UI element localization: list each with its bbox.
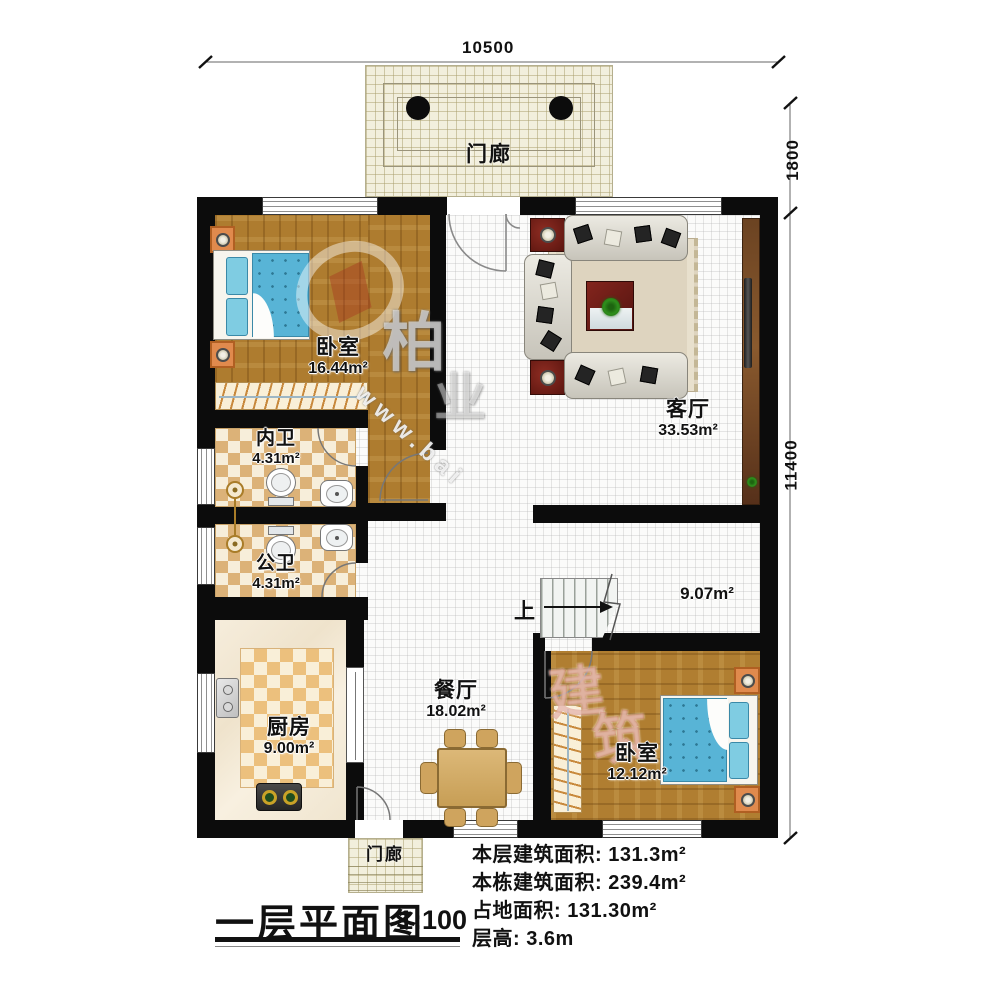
title-underline-thin (215, 946, 460, 947)
coffee-table (586, 281, 634, 331)
room-label-bedroom2: 卧室 12.12m² (607, 742, 667, 785)
sink-icon (320, 524, 353, 551)
nightstand (210, 226, 235, 253)
wall-corridor-right (430, 215, 446, 450)
stairs (540, 578, 618, 638)
room-label-hall: 9.07m² (680, 584, 734, 604)
wall-bath-bottom (197, 597, 368, 620)
dim-top-value: 10500 (462, 38, 514, 58)
wall-top-3 (520, 197, 575, 215)
stairs-up-label: 上 (514, 595, 535, 625)
room-label-bath-public: 公卫 4.31m² (252, 553, 300, 592)
porch-column-right (549, 96, 573, 120)
wall-bedroom2-left (533, 651, 551, 820)
bedroom1-corridor-floor (368, 215, 430, 503)
sofa-left (524, 254, 572, 360)
dim-right-lower-value: 11400 (782, 439, 802, 490)
room-label-living: 客厅 33.53m² (658, 398, 718, 441)
wall-kitchen-right-upper (346, 620, 364, 667)
wall-kitchen-right-lower (346, 763, 364, 820)
bed2-mattress (663, 698, 727, 782)
sofa-pillow (540, 282, 559, 301)
bottom-porch-steps (348, 866, 423, 893)
wall-corridor-bottom (368, 503, 446, 521)
sink-basin (223, 702, 233, 712)
room-area: 4.31m² (252, 575, 300, 592)
lamp-icon (741, 674, 755, 688)
window-bedroom2-bottom (602, 820, 702, 838)
bed-pillow (729, 742, 749, 779)
door-panel-line (355, 672, 356, 760)
wall-bath-divider (197, 507, 368, 524)
sofa-pillow (604, 229, 623, 248)
sink-icon (320, 480, 353, 507)
stove-icon (256, 783, 302, 811)
wall-living-hall (533, 505, 760, 523)
nightstand (210, 341, 235, 368)
kitchen-sliding-door (346, 667, 364, 763)
room-name: 餐厅 (426, 679, 486, 703)
toilet-seat (271, 473, 291, 492)
side-table-top (530, 218, 565, 252)
dim-right-upper-value: 1800 (783, 139, 803, 181)
toilet-tank (268, 526, 294, 535)
bed-pillow (729, 702, 749, 739)
sofa-top (564, 215, 688, 261)
sofa-pillow (573, 224, 593, 244)
dining-chair (444, 729, 466, 748)
dining-chair (476, 729, 498, 748)
cabinet-plant-icon (747, 477, 757, 487)
wall-bottom-1 (197, 820, 355, 838)
top-porch-label: 门廊 (466, 138, 512, 168)
bedroom1-wardrobe (215, 382, 368, 410)
room-name: 客厅 (658, 398, 718, 422)
title-underline-thick (215, 937, 460, 942)
sofa-pillow (661, 228, 682, 249)
bed1-frame (213, 250, 310, 340)
room-name: 卧室 (308, 336, 368, 360)
dining-table (437, 748, 507, 808)
room-label-bath-inner: 内卫 4.31m² (252, 428, 300, 467)
room-area: 9.07m² (680, 584, 734, 604)
bedroom2-wardrobe (553, 705, 582, 813)
sofa-pillow (540, 330, 562, 352)
nightstand (734, 786, 760, 813)
sofa-pillow (640, 366, 659, 385)
toilet-tank (268, 497, 294, 506)
bed-sheet-fold (253, 282, 275, 338)
window-bath-inner-left (197, 448, 215, 505)
wall-hall-bedroom2-right (592, 633, 760, 651)
wall-bedroom1-bottom (197, 410, 368, 428)
stat-floor-height: 层高: 3.6m (472, 922, 574, 951)
floorplan-canvas: 门廊 门廊 (0, 0, 1000, 990)
dining-chair (476, 808, 498, 827)
wall-right (760, 197, 778, 838)
sofa-pillow (634, 225, 652, 243)
sofa-pillow (608, 368, 627, 387)
room-name: 卧室 (607, 742, 667, 766)
bed-sheet-fold (706, 699, 728, 759)
wall-bottom-3 (518, 820, 602, 838)
room-name: 公卫 (252, 553, 300, 575)
sink-basin (223, 685, 233, 695)
lamp-icon (540, 370, 556, 386)
sofa-pillow (536, 306, 554, 324)
wall-bath-inner-right (356, 466, 368, 507)
toilet-icon (266, 468, 296, 497)
wall-bath-public-right (356, 524, 368, 563)
window-bath-public-left (197, 527, 215, 585)
bottom-porch-label: 门廊 (366, 840, 404, 865)
lamp-icon (741, 793, 755, 807)
lamp-icon (540, 227, 556, 243)
bed2-frame (660, 695, 758, 785)
bed-pillow (226, 298, 248, 336)
room-label-kitchen: 厨房 9.00m² (264, 716, 315, 759)
sofa-pillow (535, 259, 554, 278)
coffee-table-plant-icon (602, 298, 620, 316)
room-area: 16.44m² (308, 360, 368, 378)
window-kitchen-left (197, 673, 215, 753)
drawing-scale: 1:100 (398, 905, 467, 936)
window-bedroom1-top (262, 197, 378, 215)
nightstand (734, 667, 760, 694)
dining-chair (420, 762, 438, 794)
room-label-bedroom1: 卧室 16.44m² (308, 336, 368, 379)
room-label-dining: 餐厅 18.02m² (426, 679, 486, 722)
stat-footprint-area: 占地面积: 131.30m² (472, 894, 657, 923)
window-living-top (575, 197, 722, 215)
sofa-pillow (574, 364, 595, 385)
room-name: 厨房 (264, 716, 315, 740)
room-area: 33.53m² (658, 422, 718, 440)
bed-pillow (226, 257, 248, 295)
stat-floor-area: 本层建筑面积: 131.3m² (472, 838, 686, 867)
lamp-icon (216, 233, 230, 247)
wardrobe-rod (567, 709, 569, 811)
room-area: 9.00m² (264, 740, 315, 758)
tv-icon (744, 278, 752, 368)
wall-top-2 (378, 197, 447, 215)
porch-column-left (406, 96, 430, 120)
sofa-bottom (564, 352, 688, 399)
room-area: 12.12m² (607, 766, 667, 784)
lamp-icon (216, 348, 230, 362)
wall-bottom-4 (702, 820, 778, 838)
side-table-bottom (530, 360, 565, 395)
wardrobe-rod (219, 396, 366, 398)
dining-chair (444, 808, 466, 827)
faucet-dot (335, 536, 339, 540)
room-area: 4.31m² (252, 450, 300, 467)
faucet-dot (335, 492, 339, 496)
stove-burner (262, 790, 277, 805)
kitchen-sink-icon (216, 678, 239, 718)
stove-burner (283, 790, 298, 805)
room-name: 内卫 (252, 428, 300, 450)
stat-building-area: 本栋建筑面积: 239.4m² (472, 866, 686, 895)
bed1-mattress (252, 253, 309, 337)
room-area: 18.02m² (426, 703, 486, 721)
